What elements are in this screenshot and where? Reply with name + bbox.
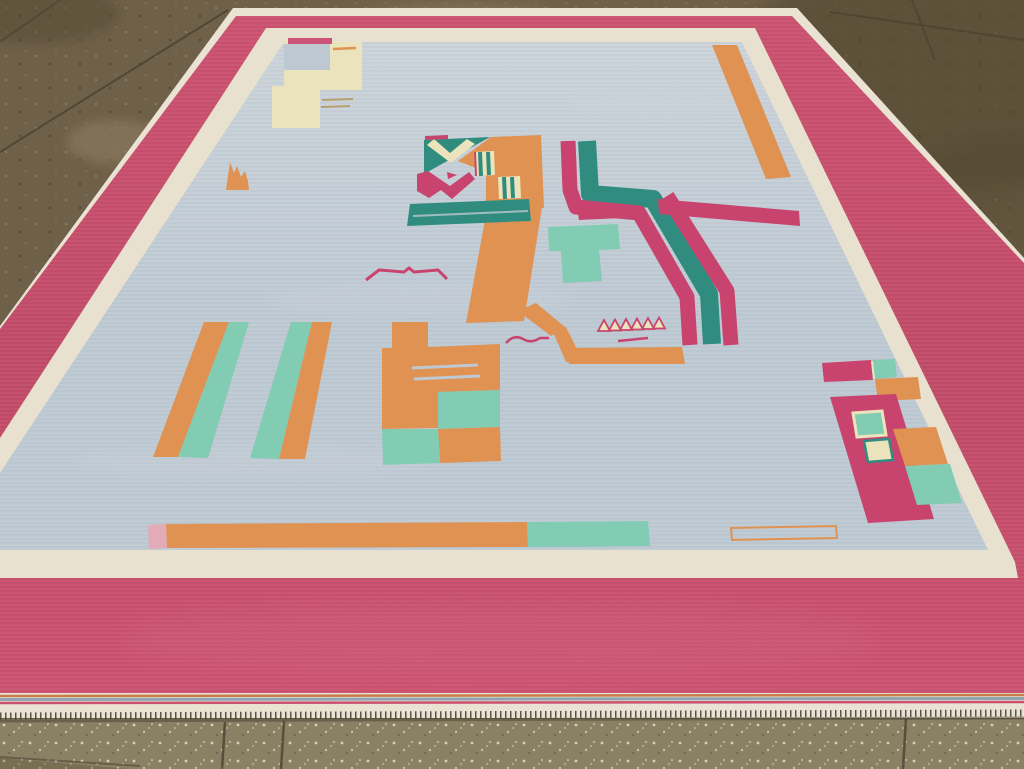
end-stripe-blue bbox=[0, 699, 1024, 700]
striped-square-1 bbox=[474, 151, 495, 176]
end-stripe-orange bbox=[0, 695, 1024, 696]
bottom-band-orange bbox=[166, 522, 528, 548]
cluster-cream-inset-square bbox=[864, 439, 893, 462]
cluster-teal-inset-square bbox=[853, 411, 886, 437]
striped-square-2 bbox=[498, 176, 521, 199]
striped-square-2-stripe-a bbox=[504, 177, 505, 199]
rug-photo: Mid-20th century Indian flat-weave dhurr… bbox=[0, 0, 1024, 769]
pink-border-sheen bbox=[120, 602, 880, 678]
striped-square-1-pink-edge bbox=[475, 152, 476, 176]
cream-block-tan-dash2 bbox=[321, 106, 350, 107]
checker-mint-topright bbox=[438, 390, 500, 429]
field-light-streak1 bbox=[570, 89, 740, 115]
cream-step-block-notch bbox=[284, 44, 330, 70]
field-light-streak3 bbox=[70, 444, 430, 480]
striped-square-2-stripe-b bbox=[512, 177, 513, 198]
cluster-pink-bar bbox=[822, 360, 873, 382]
photo-frame: Mid-20th century Indian flat-weave dhurr… bbox=[0, 0, 1024, 769]
cream-block-pink-strip bbox=[288, 38, 332, 44]
cluster-teal-cap bbox=[871, 359, 897, 379]
striped-square-1-stripe-b bbox=[488, 152, 489, 175]
striped-square-1-stripe-a bbox=[480, 152, 481, 176]
cream-block-orange-dash bbox=[333, 48, 356, 49]
end-stripe-pink bbox=[0, 702, 1024, 703]
bottom-band-pale-pink bbox=[148, 524, 167, 549]
floor-lower-speckle bbox=[0, 719, 1024, 769]
cream-block-tan-dash1 bbox=[322, 99, 353, 100]
bottom-band-mint bbox=[527, 521, 650, 547]
checker-mint-bottomleft bbox=[382, 429, 440, 465]
checker-orange-bottomright bbox=[438, 427, 501, 463]
orange-hook-bar bbox=[566, 347, 685, 364]
pink-small-rect bbox=[577, 204, 620, 220]
